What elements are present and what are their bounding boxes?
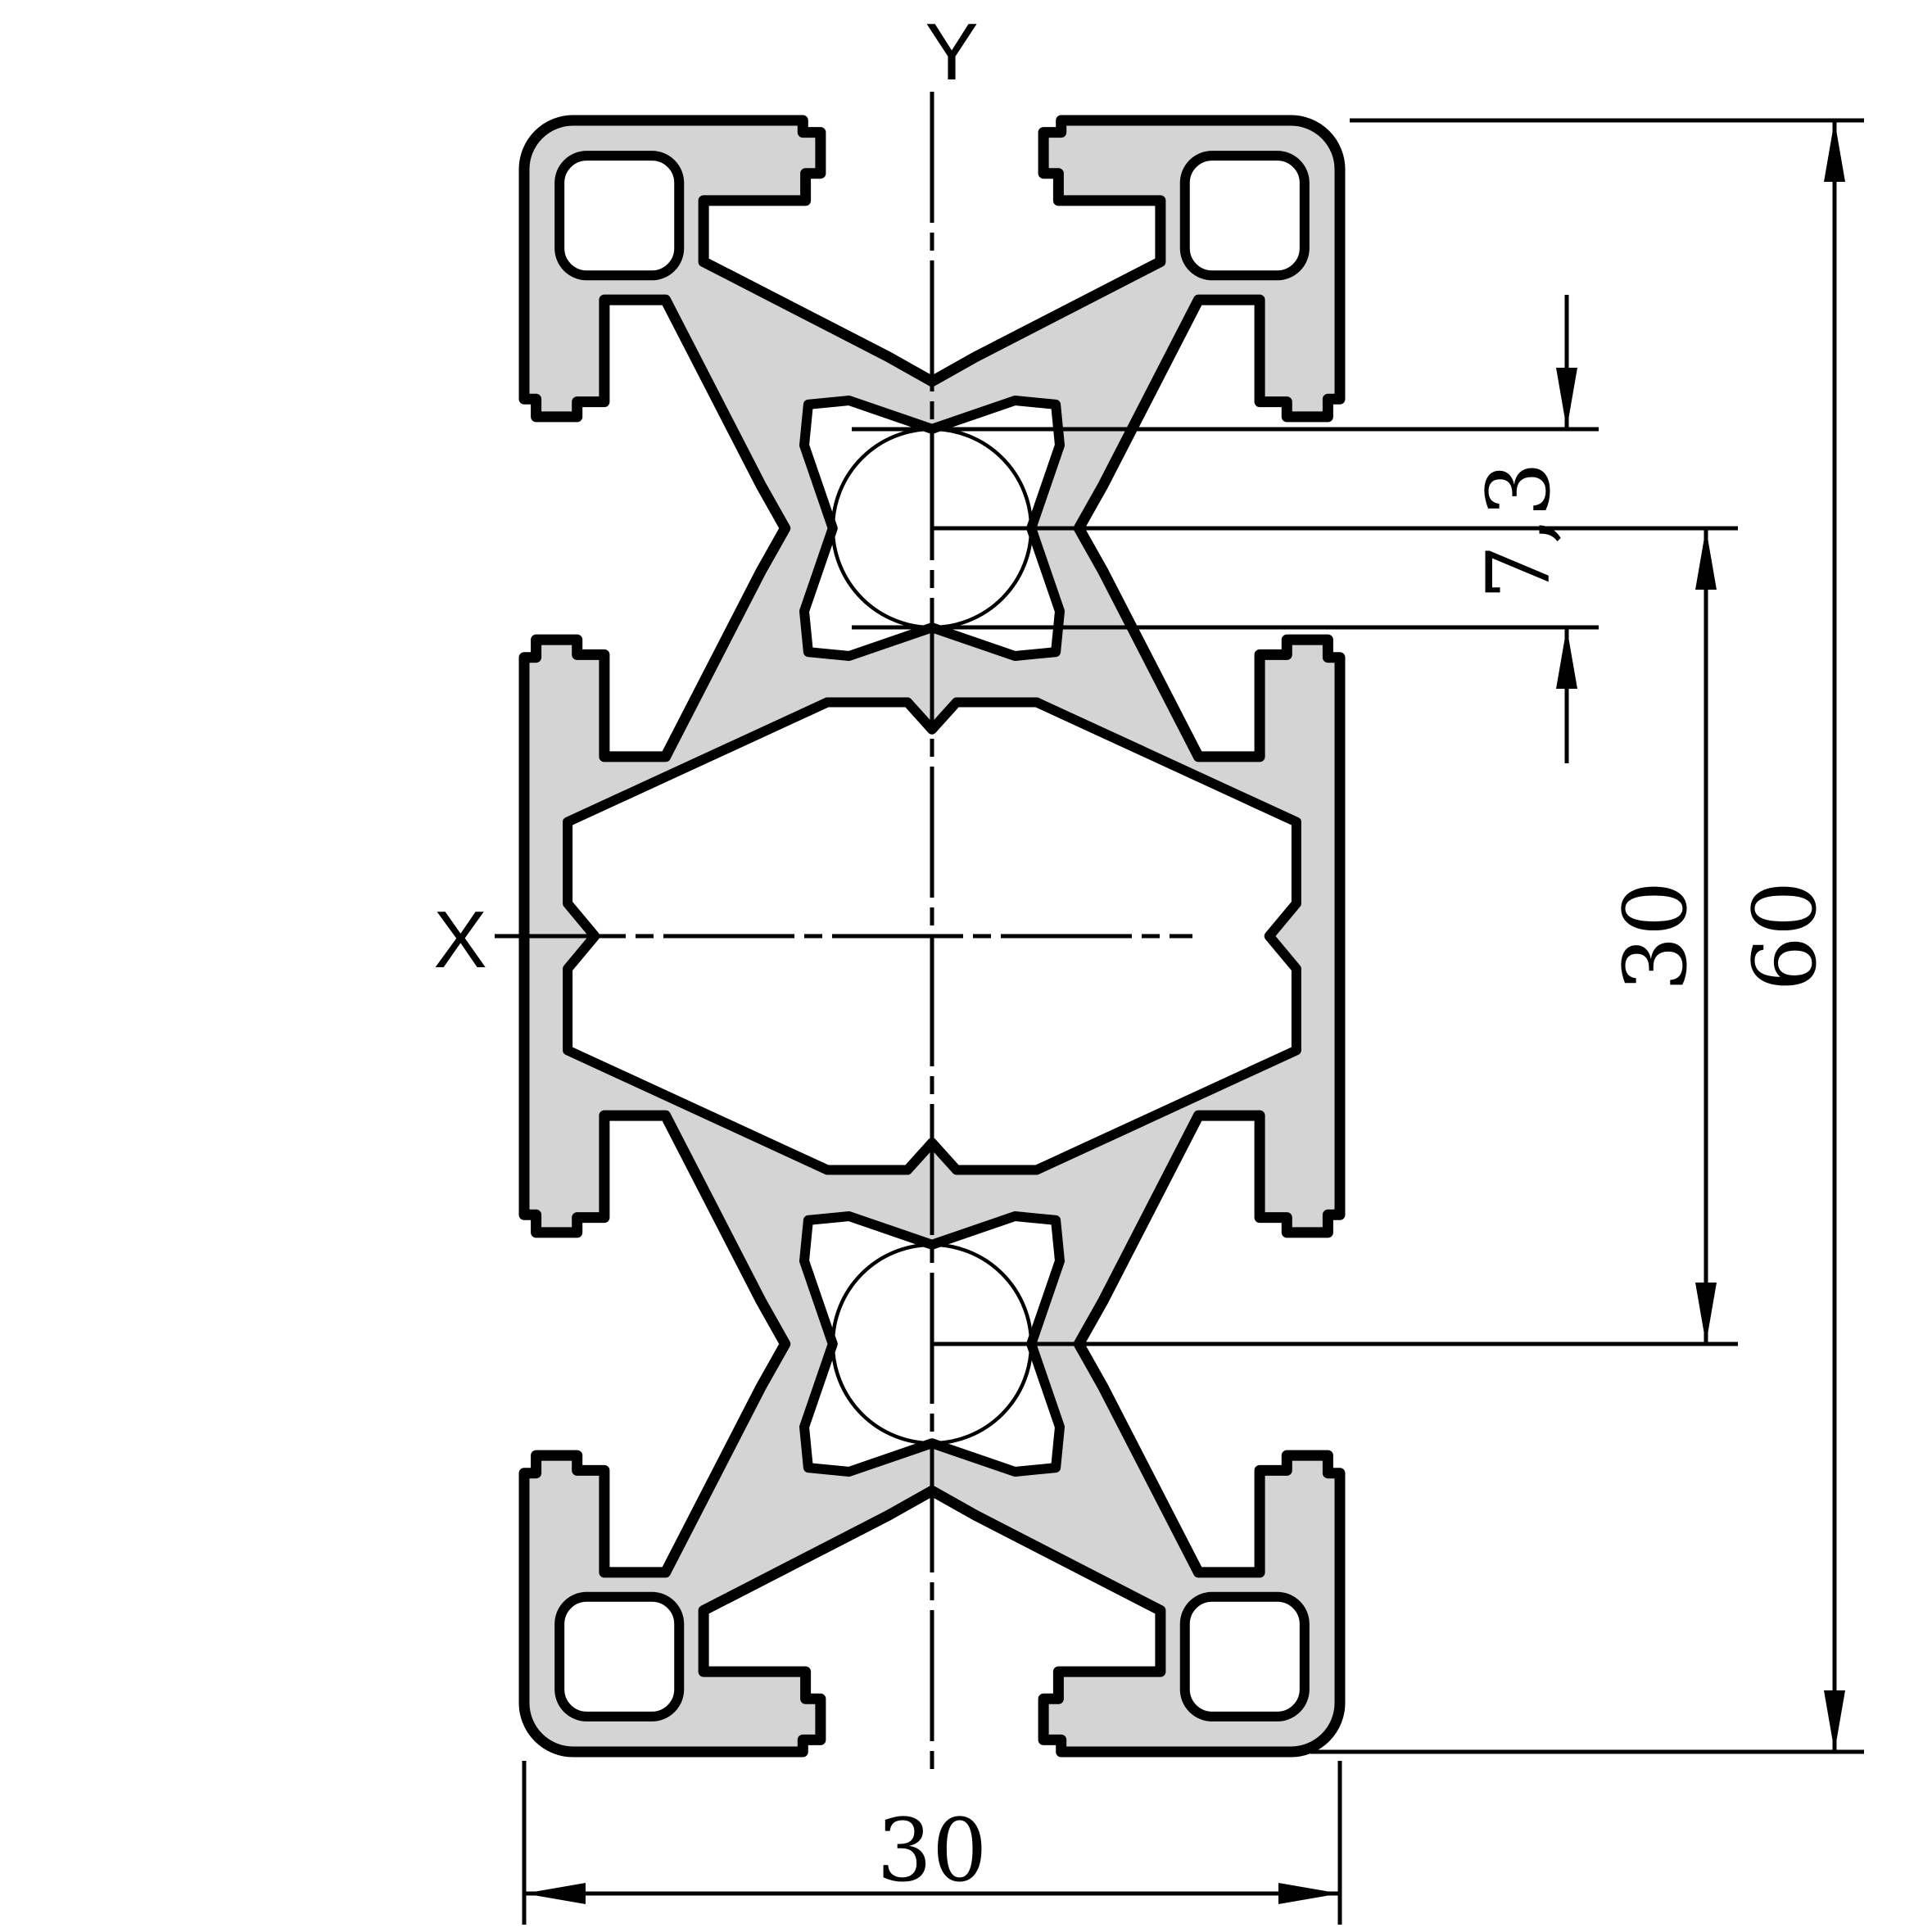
dimension-arrowhead xyxy=(1278,1883,1340,1904)
corner-hole xyxy=(1185,156,1305,275)
dimension-arrowhead xyxy=(1824,1690,1845,1752)
dimension-arrowhead xyxy=(1556,627,1577,689)
corner-hole xyxy=(559,1597,679,1717)
dimension-arrowhead xyxy=(1695,1283,1717,1344)
dimension-slot-pitch: 30 xyxy=(1605,881,1706,992)
dimension-arrowhead xyxy=(1695,528,1717,590)
dimension-profile-height: 60 xyxy=(1735,881,1835,992)
y-axis-label: Y xyxy=(925,7,978,97)
dimension-arrowhead xyxy=(1824,120,1845,182)
drawing-canvas: Y X 7,3 30 60 30 xyxy=(0,0,1932,1932)
corner-hole xyxy=(559,156,679,275)
dimension-core-diameter: 7,3 xyxy=(1468,462,1569,600)
dimension-profile-width: 30 xyxy=(877,1800,988,1901)
dimension-arrowhead xyxy=(1556,368,1577,429)
dimension-arrowhead xyxy=(524,1883,586,1904)
cad-cross-section: Y X 7,3 30 60 30 xyxy=(0,0,1932,1932)
x-axis-label: X xyxy=(433,894,486,984)
corner-hole xyxy=(1185,1597,1305,1717)
